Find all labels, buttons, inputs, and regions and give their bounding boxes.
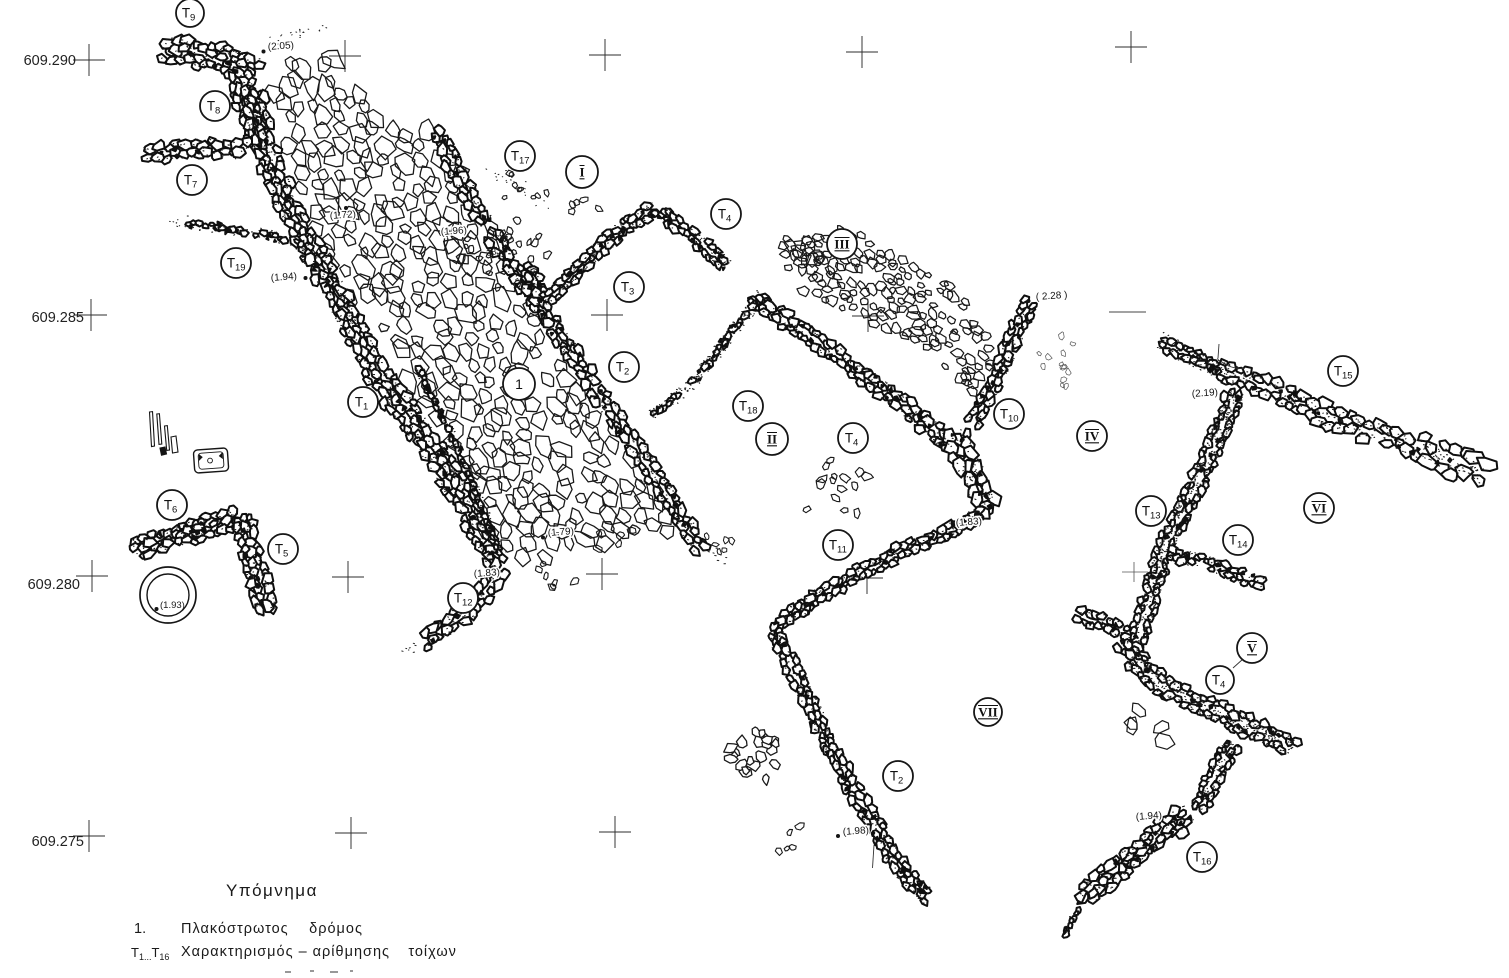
svg-text:Χαρακτηρισμός – αρίθμησης το: Χαρακτηρισμός – αρίθμησης τοίχων [181, 944, 457, 960]
svg-text:T: T [1193, 850, 1201, 865]
svg-text:T: T [890, 769, 898, 784]
svg-text:5: 5 [283, 549, 288, 560]
svg-text:T: T [355, 395, 363, 410]
svg-text:609.280: 609.280 [28, 577, 80, 593]
svg-text:T: T [739, 399, 747, 414]
svg-text:16: 16 [1201, 857, 1212, 868]
svg-text:38: 38 [486, 246, 498, 258]
svg-text:T: T [1229, 533, 1237, 548]
svg-text:T: T [511, 149, 519, 164]
svg-text:1.: 1. [134, 921, 146, 937]
svg-text:12: 12 [462, 598, 473, 609]
svg-text:17: 17 [519, 156, 530, 167]
svg-text:T: T [1212, 673, 1220, 688]
svg-text:1: 1 [363, 402, 368, 413]
svg-text:(1.72): (1.72) [329, 209, 356, 222]
svg-text:609.275: 609.275 [32, 834, 84, 850]
svg-text:(1.83): (1.83) [473, 567, 500, 580]
svg-text:III: III [834, 237, 849, 252]
svg-text:Πλακόστρωτος δρόμος: Πλακόστρωτος δρόμος [181, 921, 363, 937]
svg-text:18: 18 [747, 406, 758, 417]
svg-text:11: 11 [837, 545, 847, 556]
svg-text:T: T [182, 6, 190, 21]
svg-text:4: 4 [1220, 680, 1225, 691]
svg-text:(1.93): (1.93) [160, 600, 185, 611]
svg-text:II: II [767, 432, 777, 447]
svg-text:Υπόμνημα: Υπόμνημα [226, 881, 318, 900]
svg-text:609.290: 609.290 [24, 53, 76, 69]
svg-text:T: T [1334, 364, 1342, 379]
svg-text:13: 13 [1150, 511, 1161, 522]
svg-text:(1.83): (1.83) [955, 516, 982, 529]
svg-text:T: T [275, 542, 283, 557]
svg-text:T: T [164, 498, 172, 513]
svg-text:6: 6 [172, 505, 177, 516]
svg-text:T: T [207, 99, 215, 114]
svg-text:2: 2 [898, 776, 903, 787]
svg-text:T: T [621, 280, 629, 295]
svg-text:3: 3 [629, 287, 634, 298]
svg-text:T: T [829, 538, 837, 553]
svg-text:1: 1 [515, 376, 523, 392]
svg-text:14: 14 [1237, 540, 1248, 551]
svg-text:(1.79): (1.79) [547, 526, 574, 539]
svg-text:(1.94): (1.94) [270, 271, 297, 284]
svg-text:2: 2 [624, 367, 629, 378]
svg-text:T: T [616, 360, 624, 375]
svg-text:T: T [845, 431, 853, 446]
svg-text:(1.94): (1.94) [1135, 810, 1162, 823]
svg-text:T: T [1000, 407, 1008, 422]
svg-text:(1.98): (1.98) [842, 825, 869, 838]
svg-text:T: T [1142, 504, 1150, 519]
svg-text:15: 15 [1342, 371, 1353, 382]
svg-text:T: T [184, 173, 192, 188]
svg-text:7: 7 [192, 180, 197, 191]
svg-text:VI: VI [1312, 501, 1326, 516]
svg-text:T: T [718, 207, 726, 222]
svg-text:(1.96): (1.96) [440, 225, 467, 238]
svg-text:4: 4 [726, 214, 731, 225]
svg-text:T: T [227, 256, 235, 271]
svg-text:IV: IV [1085, 429, 1100, 444]
svg-text:T: T [454, 591, 462, 606]
svg-text:9: 9 [190, 13, 195, 24]
svg-text:V: V [1247, 641, 1257, 656]
svg-text:I: I [579, 165, 584, 180]
svg-text:4: 4 [853, 438, 858, 449]
svg-text:19: 19 [235, 263, 246, 274]
svg-text:609.285: 609.285 [32, 310, 84, 326]
svg-text:(2.19): (2.19) [1191, 387, 1218, 400]
svg-text:8: 8 [215, 106, 220, 117]
svg-text:VII: VII [978, 705, 998, 720]
svg-text:( 2.28 ): ( 2.28 ) [1035, 290, 1067, 303]
svg-text:10: 10 [1008, 414, 1019, 425]
svg-text:(2.05): (2.05) [267, 40, 294, 53]
